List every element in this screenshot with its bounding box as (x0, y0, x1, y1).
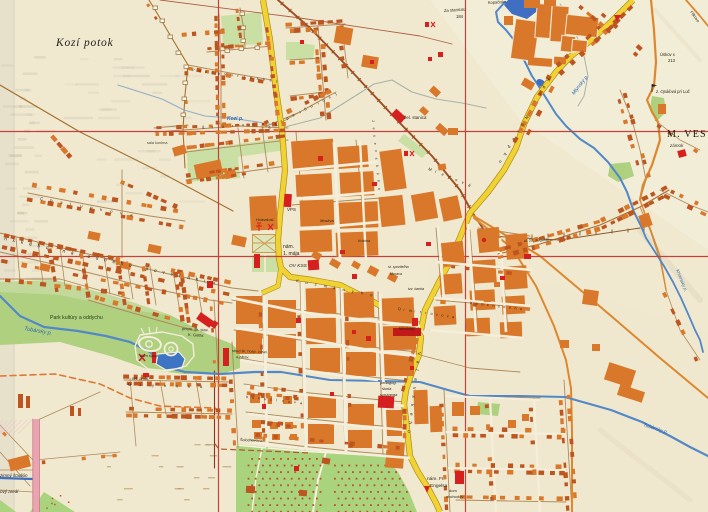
svg-text:Engelsa: Engelsa (430, 483, 448, 489)
svg-text:Park kultúry a oddychu: Park kultúry a oddychu (50, 315, 103, 321)
svg-text:Morava: Morava (390, 272, 402, 276)
svg-text:tzv. banka: tzv. banka (408, 287, 424, 291)
svg-text:M: M (128, 382, 131, 387)
svg-text:nám.: nám. (283, 244, 294, 250)
svg-text:ret. amfit.: ret. amfit. (132, 376, 149, 381)
svg-text:m: m (409, 309, 413, 313)
svg-text:Hviezdosl.: Hviezdosl. (256, 217, 274, 222)
svg-text:k: k (188, 384, 190, 389)
svg-text:Kristína: Kristína (358, 239, 370, 243)
svg-text:n: n (374, 150, 378, 152)
svg-text:ový areál: ový areál (0, 489, 19, 494)
svg-text:zimný štadión: zimný štadión (0, 473, 28, 478)
svg-text:a zdrav.: a zdrav. (236, 355, 249, 359)
svg-text:m: m (481, 302, 485, 306)
svg-text:n: n (164, 383, 166, 388)
svg-text:o: o (242, 123, 244, 127)
svg-text:Úskov x: Úskov x (660, 52, 676, 57)
svg-text:Šolochovova: Šolochovova (240, 437, 263, 443)
svg-text:z. Opálová pri Luč: z. Opálová pri Luč (655, 89, 691, 94)
svg-text:zámok: zámok (669, 143, 684, 148)
svg-text:žel. stanica: žel. stanica (404, 115, 427, 120)
svg-text:synagoga: synagoga (380, 392, 398, 397)
svg-text:obchodov: obchodov (446, 494, 463, 499)
svg-text:OV KSS: OV KSS (289, 263, 308, 269)
svg-text:Kozí potok: Kozí potok (55, 37, 114, 49)
svg-text:Kozí p.: Kozí p. (227, 116, 243, 122)
svg-text:s: s (176, 383, 178, 388)
svg-text:é: é (376, 173, 380, 175)
svg-text:e: e (373, 142, 377, 144)
svg-text:Moskva: Moskva (320, 218, 335, 223)
svg-text:e: e (372, 127, 376, 129)
svg-text:M. VES: M. VES (667, 129, 707, 140)
svg-text:y: y (152, 383, 154, 388)
svg-text:dom šport.: dom šport. (140, 353, 159, 358)
svg-text:dom: dom (449, 488, 457, 493)
svg-text:1. mája: 1. mája (283, 251, 300, 257)
svg-text:škola: škola (382, 386, 392, 391)
svg-text:VPS: VPS (287, 207, 296, 212)
svg-text:K. Gottw.: K. Gottw. (188, 332, 204, 338)
svg-text:Mestský: Mestský (399, 326, 415, 331)
svg-text:nám. Fr.: nám. Fr. (427, 476, 445, 482)
svg-text:ú: ú (222, 125, 224, 129)
svg-text:h: h (376, 180, 380, 182)
svg-text:st. sporiteľňa: st. sporiteľňa (388, 265, 409, 269)
svg-text:o: o (377, 188, 381, 190)
svg-text:pedagog.: pedagog. (379, 380, 397, 385)
svg-text:sala konirna: sala konirna (147, 141, 168, 145)
svg-text:213: 213 (668, 58, 676, 63)
svg-text:v: v (252, 123, 254, 127)
svg-text:184: 184 (456, 14, 464, 19)
